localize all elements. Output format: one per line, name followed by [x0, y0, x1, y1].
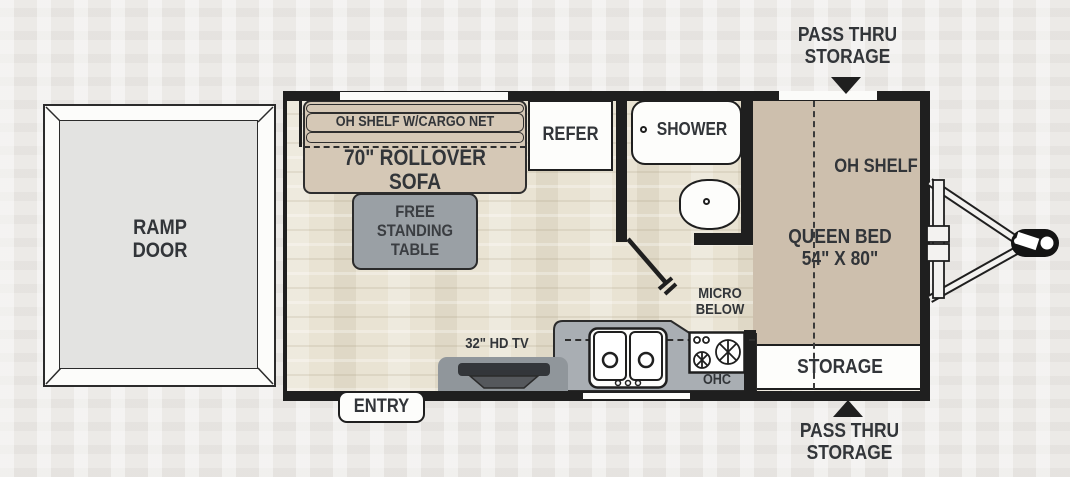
shower-label: SHOWER	[654, 119, 731, 141]
bathroom-wall-bottom	[694, 233, 753, 245]
sink	[588, 327, 668, 389]
pass-thru-bottom-label: PASS THRU STORAGE	[782, 416, 917, 468]
toilet-flush-icon	[703, 198, 710, 205]
sofa-label: 70" ROLLOVER SOFA	[322, 158, 508, 182]
shower-head-icon	[640, 126, 647, 133]
bathroom-door	[620, 233, 682, 297]
tv-label: 32" HD TV	[458, 336, 536, 352]
pass-thru-top-arrow-icon	[831, 77, 861, 94]
cargo-shelf-bottom-stripe	[306, 132, 524, 143]
pass-thru-top-opening	[779, 91, 877, 101]
micro-below-label: MICRO BELOW	[692, 284, 748, 320]
entry-label: ENTRY	[346, 395, 416, 419]
sofa-side-panel	[299, 101, 302, 147]
pass-thru-top-label: PASS THRU STORAGE	[780, 20, 915, 72]
queen-bed	[753, 101, 920, 345]
cargo-shelf-top-stripe	[306, 104, 524, 113]
queen-bed-label: QUEEN BED 54" X 80"	[775, 224, 906, 272]
storage-label: STORAGE	[783, 352, 896, 382]
bed-centerline	[813, 101, 815, 389]
cargo-shelf-label: OH SHELF W/CARGO NET	[324, 114, 507, 131]
pass-thru-bottom-arrow-icon	[833, 400, 863, 417]
stove	[688, 331, 746, 374]
toilet	[679, 179, 740, 230]
ramp-door-label: RAMP DOOR	[108, 211, 212, 267]
window-top	[340, 91, 508, 101]
tv-icon	[438, 357, 568, 392]
bathroom-wall-left	[616, 99, 627, 242]
oh-shelf-label: OH SHELF	[833, 156, 920, 178]
refrigerator-label: REFER	[535, 124, 605, 146]
ohc-label: OHC	[699, 373, 736, 389]
trailer-tongue-hitch	[921, 166, 1066, 311]
bathroom-wall-right	[741, 99, 753, 245]
coupler-icon	[1011, 229, 1059, 257]
floorplan-canvas: RAMP DOOR OH SHELF QUEEN BED 54" X 80" S…	[0, 0, 1070, 477]
wall-left	[283, 91, 287, 401]
table-label: FREE STANDING TABLE	[363, 197, 467, 266]
window-bottom	[583, 392, 690, 400]
